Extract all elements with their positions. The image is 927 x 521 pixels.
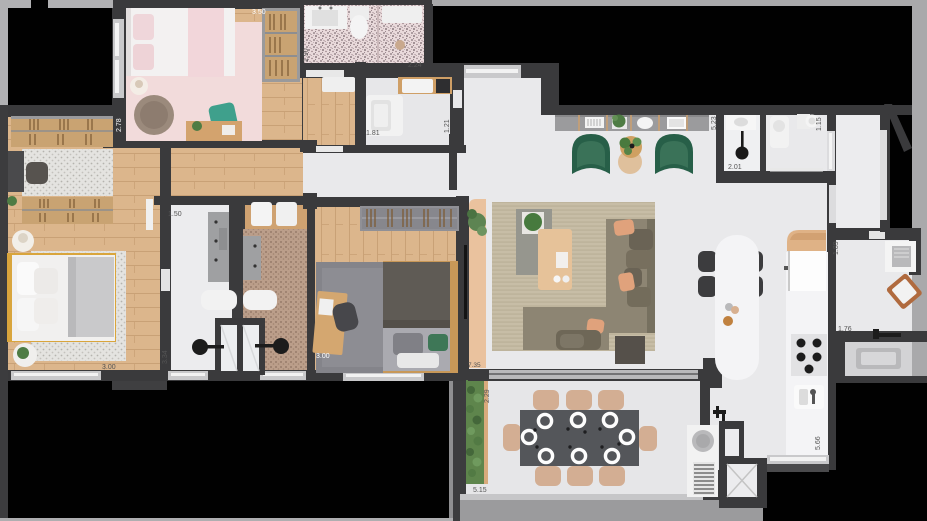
svg-text:5.23: 5.23 [711, 116, 718, 130]
svg-text:1.21: 1.21 [444, 119, 451, 133]
svg-text:2.24: 2.24 [408, 62, 422, 69]
svg-text:1.90: 1.90 [303, 48, 310, 62]
svg-text:1.15: 1.15 [816, 117, 823, 131]
svg-text:3.00: 3.00 [102, 364, 116, 371]
svg-text:2.01: 2.01 [728, 164, 742, 171]
svg-text:1.50: 1.50 [168, 211, 182, 218]
svg-text:3.50: 3.50 [252, 9, 266, 16]
svg-text:5.15: 5.15 [473, 487, 487, 494]
svg-text:3.34: 3.34 [162, 350, 169, 364]
svg-text:2.78: 2.78 [116, 118, 123, 132]
svg-text:7.35: 7.35 [468, 362, 481, 369]
svg-text:1.76: 1.76 [838, 326, 852, 333]
svg-text:5.66: 5.66 [815, 436, 822, 450]
svg-text:2.29: 2.29 [484, 389, 491, 403]
svg-text:1.81: 1.81 [366, 130, 380, 137]
svg-text:1.89: 1.89 [833, 241, 840, 255]
svg-text:3.00: 3.00 [316, 353, 330, 360]
